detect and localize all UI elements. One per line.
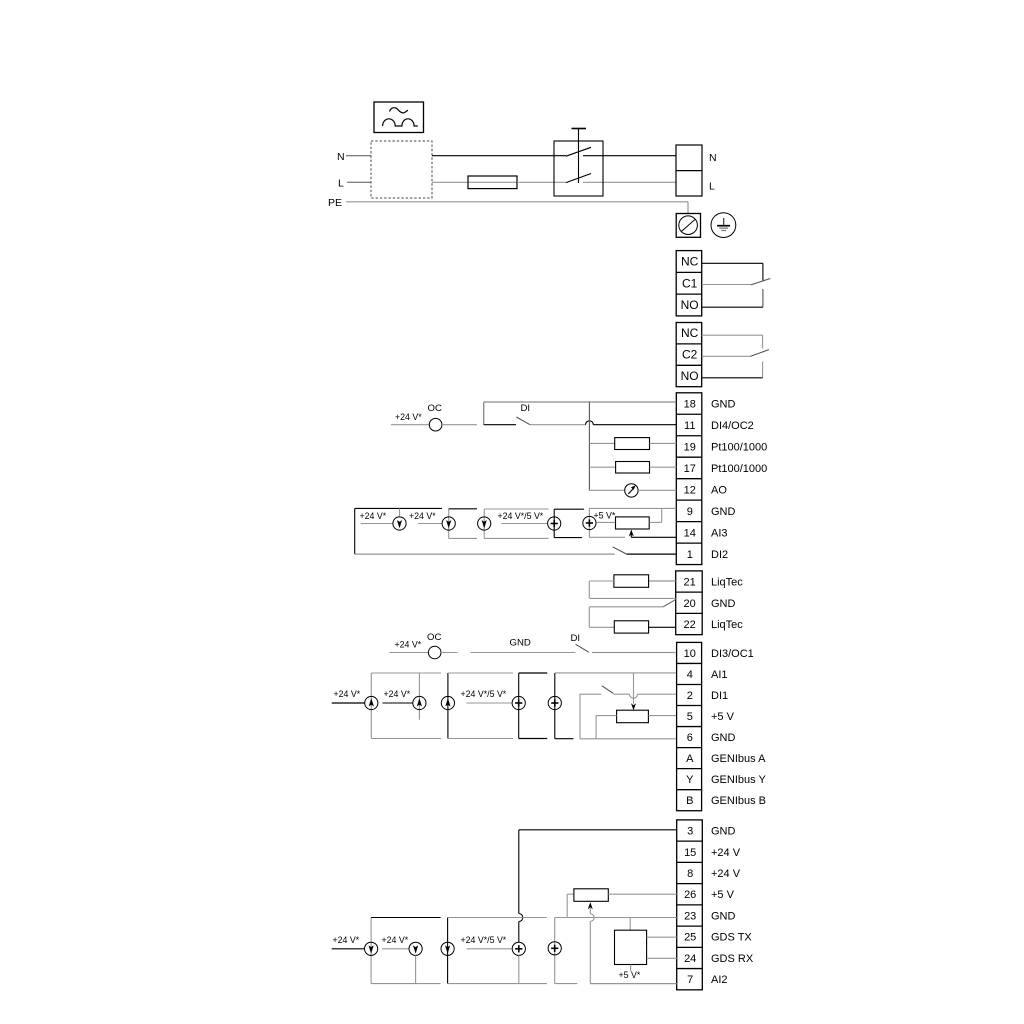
svg-text:+5 V*: +5 V* [619, 970, 641, 980]
svg-text:+24 V*/5 V*: +24 V*/5 V* [461, 689, 507, 699]
svg-text:+5 V*: +5 V* [594, 511, 616, 521]
svg-text:+5 V: +5 V [711, 711, 735, 723]
svg-text:17: 17 [684, 463, 696, 475]
svg-text:+24 V*: +24 V* [382, 935, 409, 945]
svg-text:10: 10 [684, 648, 696, 660]
svg-text:DI3/OC1: DI3/OC1 [711, 648, 754, 660]
svg-text:GND: GND [711, 598, 736, 610]
svg-text:8: 8 [687, 868, 693, 880]
svg-text:GDS TX: GDS TX [711, 932, 752, 944]
svg-text:DI1: DI1 [711, 690, 728, 702]
svg-text:L: L [338, 178, 344, 190]
svg-text:Pt100/1000: Pt100/1000 [711, 463, 767, 475]
svg-text:24: 24 [684, 953, 696, 965]
svg-text:AI3: AI3 [711, 527, 728, 539]
svg-text:5: 5 [687, 711, 693, 723]
svg-text:OC: OC [427, 632, 441, 643]
svg-text:DI: DI [521, 403, 531, 414]
svg-text:1: 1 [687, 549, 693, 561]
svg-text:+24 V*: +24 V* [334, 689, 361, 699]
svg-text:+5 V: +5 V [711, 889, 735, 901]
svg-text:N: N [337, 151, 345, 163]
svg-text:GND: GND [711, 910, 736, 922]
svg-text:GDS RX: GDS RX [711, 953, 754, 965]
svg-text:20: 20 [684, 598, 696, 610]
svg-text:21: 21 [684, 577, 696, 589]
svg-text:+24 V*: +24 V* [333, 935, 360, 945]
svg-text:14: 14 [684, 527, 696, 539]
svg-text:15: 15 [684, 847, 696, 859]
svg-text:9: 9 [687, 506, 693, 518]
svg-text:+24 V*/5 V*: +24 V*/5 V* [498, 511, 544, 521]
svg-text:AI2: AI2 [711, 974, 728, 986]
svg-text:+24 V: +24 V [711, 847, 741, 859]
svg-text:AI1: AI1 [711, 669, 728, 681]
svg-text:N: N [709, 152, 717, 164]
svg-text:PE: PE [328, 197, 342, 209]
svg-text:23: 23 [684, 910, 696, 922]
svg-text:12: 12 [684, 484, 696, 496]
svg-text:GENIbus Y: GENIbus Y [711, 774, 766, 786]
svg-text:+24 V*: +24 V* [384, 689, 411, 699]
svg-text:GENIbus A: GENIbus A [711, 753, 766, 765]
svg-text:+24 V*: +24 V* [395, 640, 422, 650]
svg-text:B: B [686, 795, 693, 807]
svg-text:DI: DI [571, 633, 581, 644]
svg-text:22: 22 [684, 619, 696, 631]
svg-text:C2: C2 [682, 348, 698, 362]
svg-text:C1: C1 [682, 276, 698, 290]
svg-text:GND: GND [711, 826, 736, 838]
svg-text:GND: GND [711, 732, 736, 744]
svg-text:+24 V*: +24 V* [395, 412, 422, 422]
svg-text:DI4/OC2: DI4/OC2 [711, 420, 754, 432]
svg-text:GND: GND [510, 638, 531, 649]
svg-text:Y: Y [686, 774, 694, 786]
svg-text:+24 V: +24 V [711, 868, 741, 880]
svg-text:NC: NC [681, 326, 699, 340]
svg-text:+24 V*: +24 V* [360, 511, 387, 521]
svg-text:6: 6 [687, 732, 693, 744]
svg-text:11: 11 [684, 420, 695, 432]
svg-text:Pt100/1000: Pt100/1000 [711, 441, 767, 453]
svg-text:OC: OC [428, 403, 442, 414]
svg-text:3: 3 [687, 826, 693, 838]
svg-text:26: 26 [684, 889, 696, 901]
svg-text:AO: AO [711, 484, 727, 496]
svg-text:GENIbus B: GENIbus B [711, 795, 766, 807]
svg-text:7: 7 [687, 974, 693, 986]
svg-text:4: 4 [687, 669, 693, 681]
svg-text:GND: GND [711, 399, 736, 411]
svg-text:LiqTec: LiqTec [711, 577, 743, 589]
svg-text:2: 2 [687, 690, 693, 702]
svg-text:LiqTec: LiqTec [711, 619, 743, 631]
svg-text:18: 18 [684, 399, 696, 411]
svg-text:DI2: DI2 [711, 549, 728, 561]
svg-text:+24 V*/5 V*: +24 V*/5 V* [461, 935, 507, 945]
svg-text:L: L [709, 181, 715, 193]
svg-text:19: 19 [684, 441, 696, 453]
svg-text:GND: GND [711, 506, 736, 518]
svg-text:NO: NO [681, 298, 699, 312]
svg-text:A: A [686, 753, 694, 765]
svg-text:NO: NO [681, 369, 699, 383]
svg-text:+24 V*: +24 V* [409, 511, 436, 521]
svg-text:25: 25 [684, 932, 696, 944]
svg-text:NC: NC [681, 254, 699, 268]
